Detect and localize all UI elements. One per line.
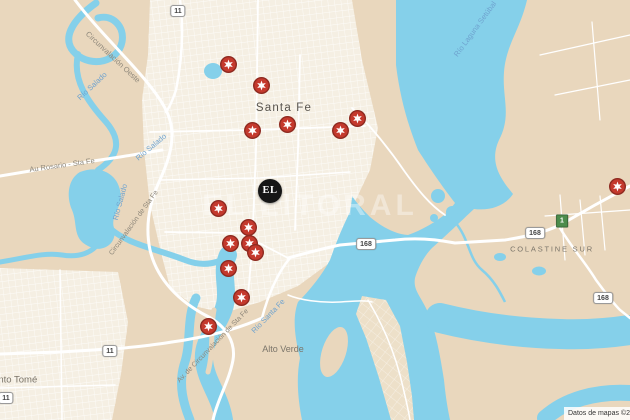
route-shield: 168 — [593, 292, 613, 304]
map-marker-star[interactable] — [200, 318, 217, 335]
place-label: Río Salado — [134, 132, 168, 163]
place-label: Alto Verde — [262, 344, 304, 354]
place-label: Río Salado — [75, 70, 108, 102]
logo-marker-label: EL — [262, 185, 277, 196]
route-shield: 11 — [170, 5, 185, 17]
map-marker-star[interactable] — [279, 116, 296, 133]
place-label: Circunvalación de Sta Fe — [108, 189, 160, 256]
place-label: Circunvalación Oeste — [84, 29, 142, 84]
route-shield: 11 — [0, 392, 14, 404]
map-marker-star[interactable] — [244, 122, 261, 139]
map-overlay-layer: Santa FeCOLASTINE SURAlto VerdeSanto Tom… — [0, 0, 630, 420]
map-marker-star[interactable] — [349, 110, 366, 127]
logo-marker-el[interactable]: EL — [258, 179, 282, 203]
map-marker-star[interactable] — [220, 56, 237, 73]
route-shield: 11 — [102, 345, 117, 357]
map-marker-star[interactable] — [210, 200, 227, 217]
route-shield: 168 — [525, 227, 545, 239]
place-label: Río Salado — [111, 183, 129, 221]
place-label: Santa Fe — [256, 102, 312, 114]
place-label: Río Laguna Setúbal — [452, 0, 498, 58]
place-label: Río Santa Fe — [249, 297, 286, 335]
map-marker-star[interactable] — [220, 260, 237, 277]
map-marker-star[interactable] — [240, 219, 257, 236]
map-marker-star[interactable] — [609, 178, 626, 195]
map-marker-star[interactable] — [253, 77, 270, 94]
map-marker-star[interactable] — [222, 235, 239, 252]
map-attribution: Datos de mapas ©2019 — [564, 407, 630, 420]
route-shield: 168 — [356, 238, 376, 250]
map[interactable]: EL LITORAL Santa FeCOLASTINE SURAlto Ver… — [0, 0, 630, 420]
map-marker-star[interactable] — [332, 122, 349, 139]
place-label: Au Rosario - Sta Fe — [29, 156, 95, 174]
place-label: COLASTINE SUR — [510, 245, 594, 254]
map-marker-star[interactable] — [247, 244, 264, 261]
place-label: Santo Tomé — [0, 375, 37, 386]
map-marker-star[interactable] — [233, 289, 250, 306]
route-shield: 1 — [556, 215, 568, 228]
